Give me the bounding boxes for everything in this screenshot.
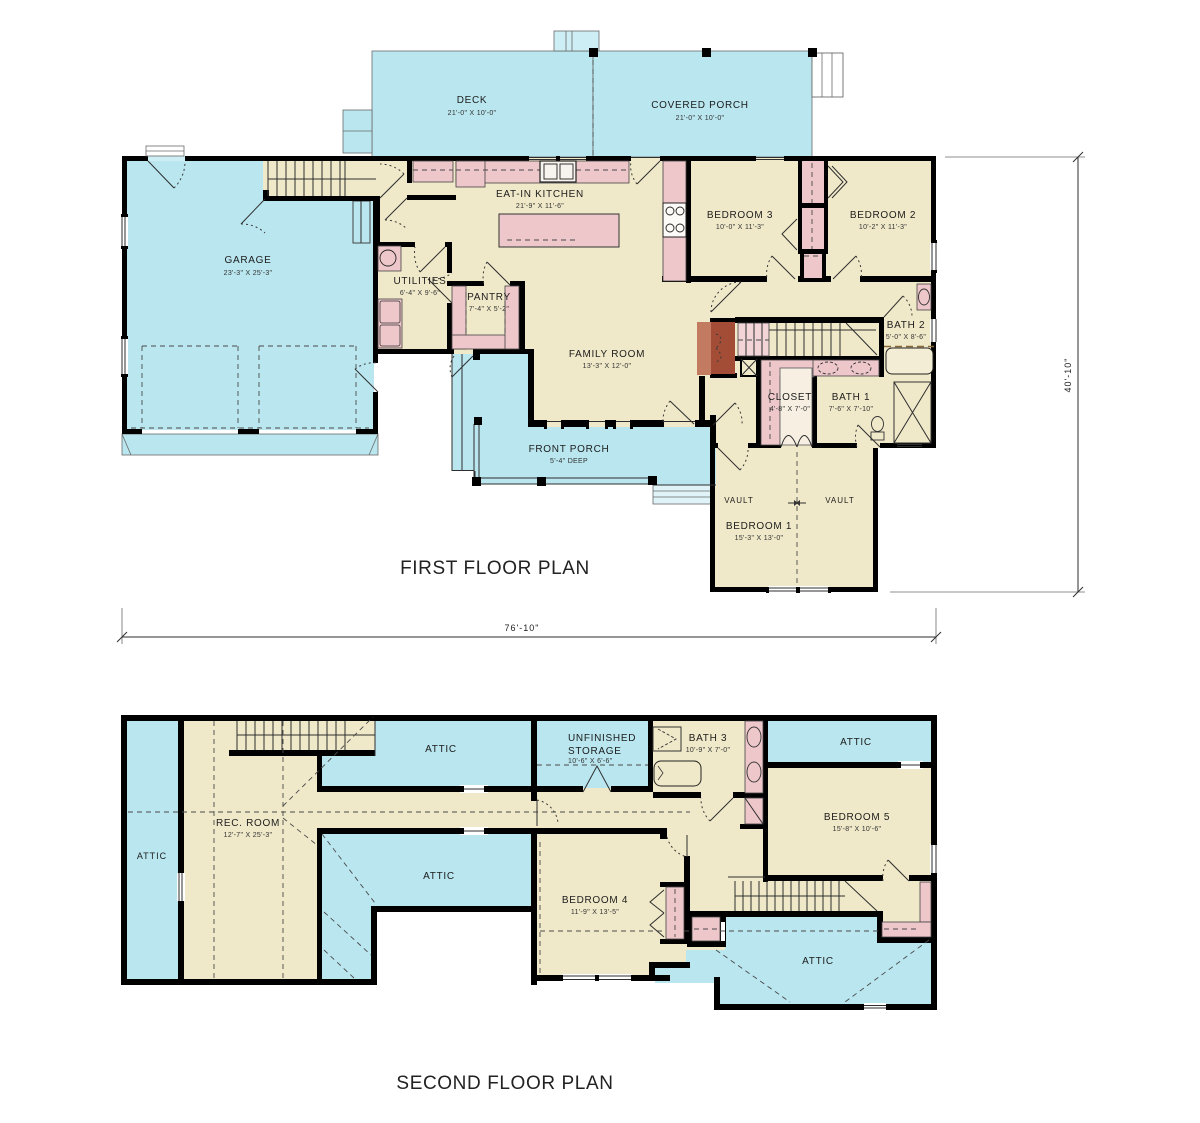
- svg-text:13'-3" X 12'-0": 13'-3" X 12'-0": [583, 363, 632, 370]
- svg-text:4'-8" X 7'-0": 4'-8" X 7'-0": [770, 406, 811, 413]
- svg-text:VAULT: VAULT: [724, 496, 754, 505]
- svg-text:BEDROOM 4: BEDROOM 4: [562, 895, 628, 906]
- svg-text:10'-6" X 6'-6": 10'-6" X 6'-6": [568, 758, 613, 765]
- svg-text:BEDROOM 1: BEDROOM 1: [726, 521, 792, 532]
- svg-text:21'-0" X 10'-0": 21'-0" X 10'-0": [448, 110, 497, 117]
- svg-text:76'-10": 76'-10": [505, 623, 540, 633]
- svg-text:BATH 2: BATH 2: [887, 320, 925, 331]
- svg-text:12'-7" X 25'-3": 12'-7" X 25'-3": [224, 832, 273, 839]
- svg-text:ATTIC: ATTIC: [425, 744, 457, 755]
- svg-text:BEDROOM 2: BEDROOM 2: [850, 210, 916, 221]
- svg-text:15'-8" X 10'-6": 15'-8" X 10'-6": [833, 826, 882, 833]
- svg-text:PANTRY: PANTRY: [467, 292, 511, 303]
- svg-text:UNFINISHED: UNFINISHED: [568, 733, 636, 744]
- svg-text:23'-3" X 25'-3": 23'-3" X 25'-3": [224, 270, 273, 277]
- svg-text:EAT-IN KITCHEN: EAT-IN KITCHEN: [496, 189, 584, 200]
- svg-text:SECOND FLOOR PLAN: SECOND FLOOR PLAN: [396, 1073, 613, 1094]
- svg-text:FIRST FLOOR PLAN: FIRST FLOOR PLAN: [400, 558, 590, 579]
- svg-text:STORAGE: STORAGE: [568, 746, 622, 757]
- svg-text:COVERED PORCH: COVERED PORCH: [651, 100, 748, 111]
- svg-text:15'-3" X 13'-0": 15'-3" X 13'-0": [735, 535, 784, 542]
- svg-text:10'-2" X 11'-3": 10'-2" X 11'-3": [859, 224, 907, 231]
- svg-text:ATTIC: ATTIC: [840, 737, 872, 748]
- svg-text:10'-0" X 11'-3": 10'-0" X 11'-3": [716, 224, 764, 231]
- svg-text:5'-4" DEEP: 5'-4" DEEP: [550, 458, 588, 465]
- svg-text:6'-4" X 9'-6": 6'-4" X 9'-6": [400, 290, 441, 297]
- svg-text:11'-9" X 13'-5": 11'-9" X 13'-5": [571, 909, 619, 916]
- svg-text:CLOSET: CLOSET: [768, 392, 812, 403]
- svg-text:DECK: DECK: [457, 95, 488, 106]
- svg-text:BATH 3: BATH 3: [689, 733, 727, 744]
- svg-text:FAMILY ROOM: FAMILY ROOM: [569, 349, 645, 360]
- svg-text:FRONT PORCH: FRONT PORCH: [529, 444, 610, 455]
- svg-text:21'-9" X 11'-6": 21'-9" X 11'-6": [516, 203, 564, 210]
- svg-text:ATTIC: ATTIC: [802, 956, 834, 967]
- svg-text:40'-10": 40'-10": [1063, 358, 1073, 393]
- svg-text:BEDROOM 3: BEDROOM 3: [707, 210, 773, 221]
- svg-text:21'-0" X 10'-0": 21'-0" X 10'-0": [676, 115, 725, 122]
- svg-text:ATTIC: ATTIC: [423, 871, 455, 882]
- svg-text:7'-6" X 7'-10": 7'-6" X 7'-10": [829, 406, 874, 413]
- svg-text:7'-4" X 5'-2": 7'-4" X 5'-2": [469, 306, 510, 313]
- svg-text:BATH 1: BATH 1: [832, 392, 870, 403]
- svg-text:VAULT: VAULT: [825, 496, 855, 505]
- svg-text:GARAGE: GARAGE: [225, 255, 272, 266]
- svg-text:REC. ROOM: REC. ROOM: [216, 818, 280, 829]
- svg-text:BEDROOM 5: BEDROOM 5: [824, 812, 890, 823]
- svg-text:5'-0" X 8'-6": 5'-0" X 8'-6": [886, 334, 927, 341]
- svg-text:10'-9" X 7'-0": 10'-9" X 7'-0": [686, 747, 731, 754]
- svg-text:UTILITIES: UTILITIES: [394, 276, 447, 287]
- svg-text:ATTIC: ATTIC: [137, 851, 167, 861]
